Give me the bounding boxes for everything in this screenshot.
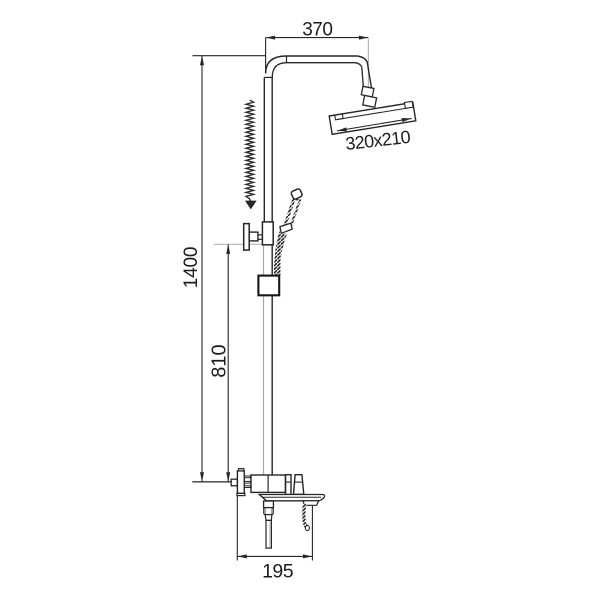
svg-text:195: 195 (262, 561, 294, 583)
svg-text:1400: 1400 (181, 247, 202, 288)
svg-text:370: 370 (302, 20, 332, 41)
svg-text:810: 810 (209, 344, 231, 377)
